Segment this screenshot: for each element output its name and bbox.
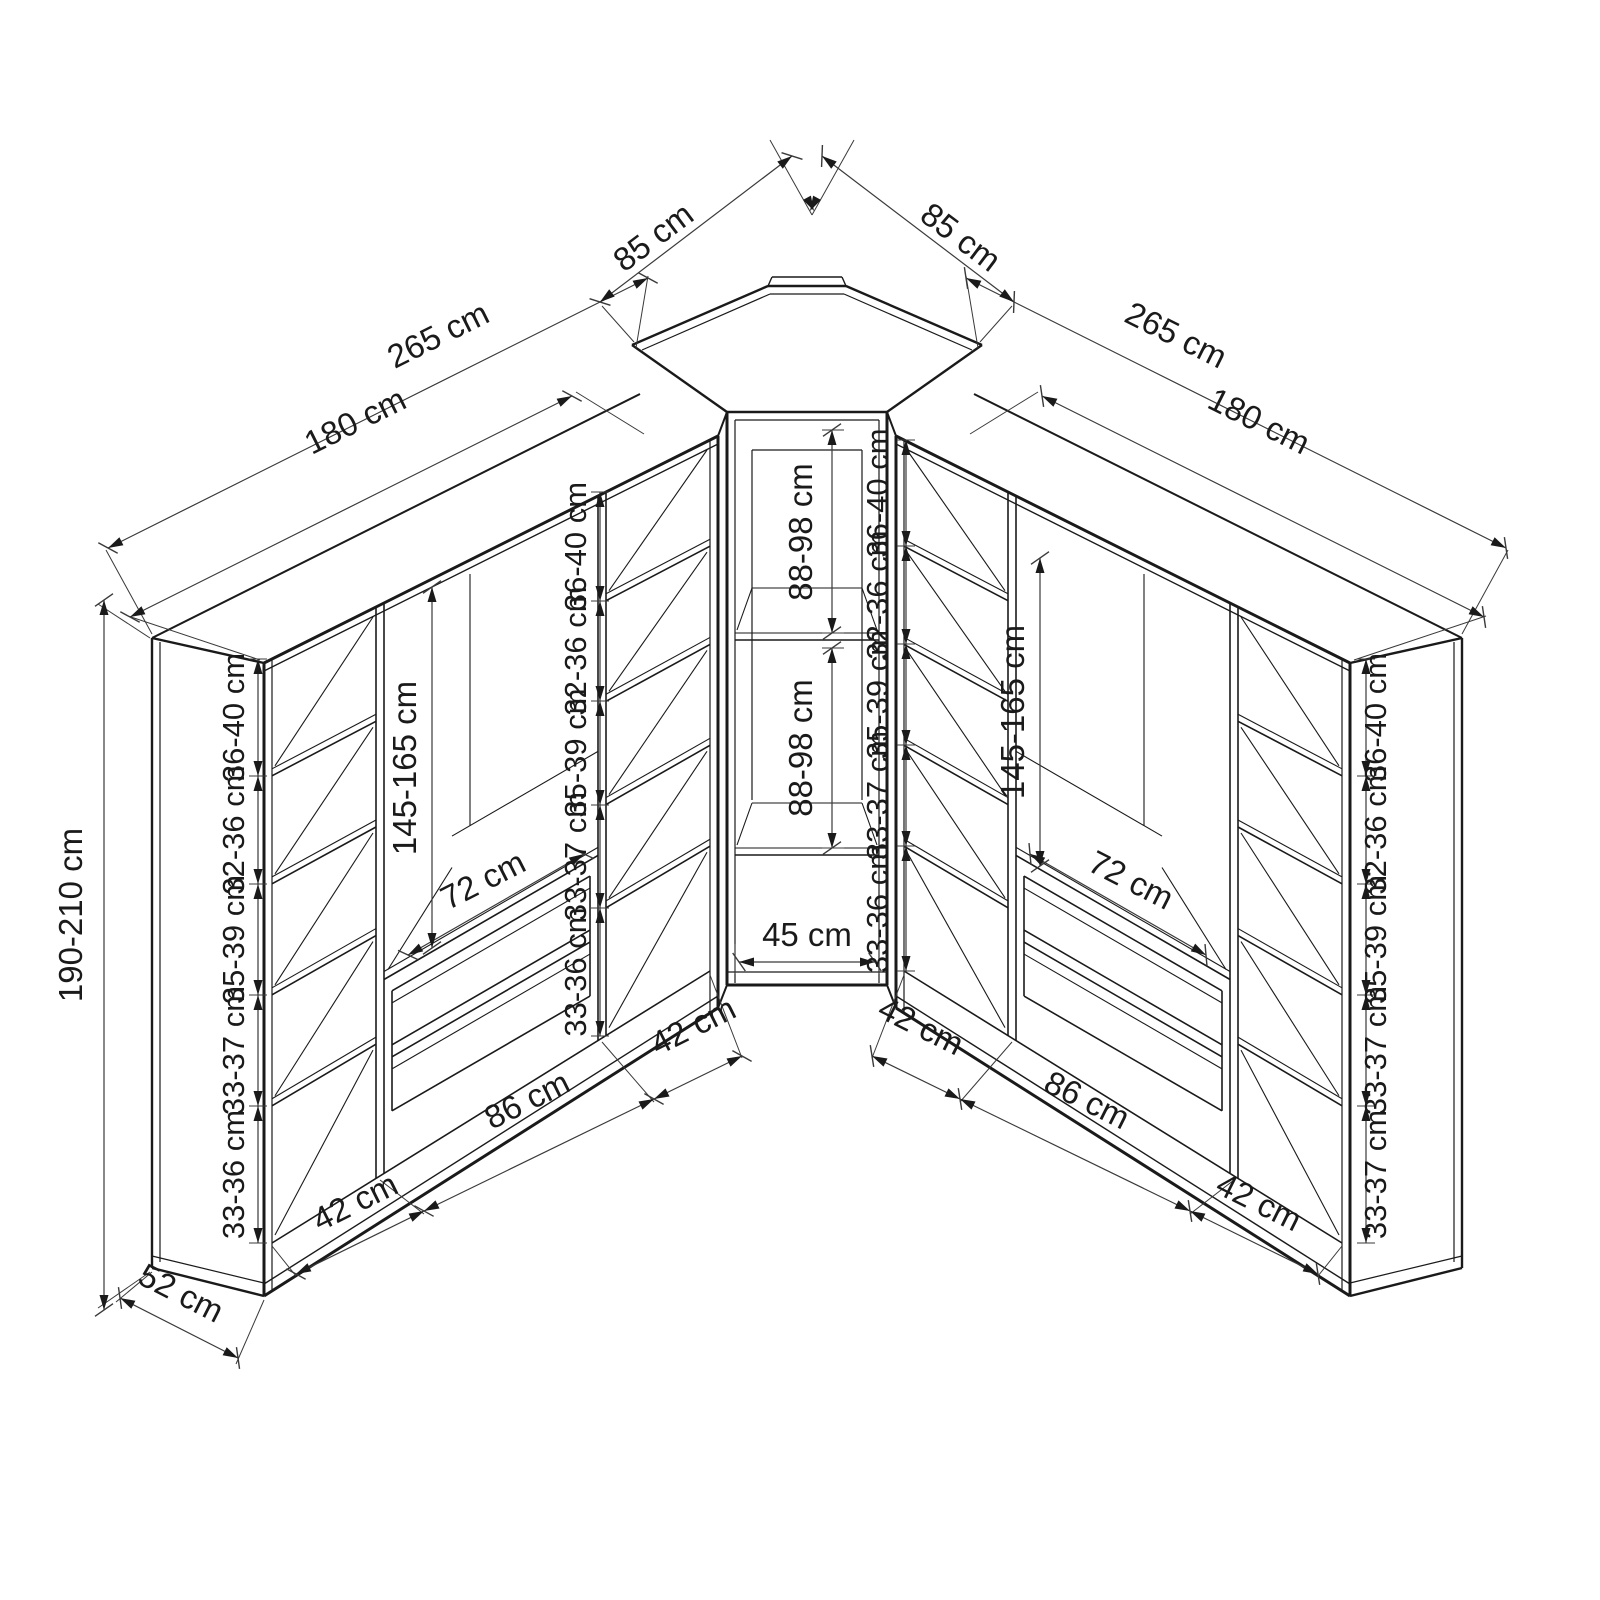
dim-label: 35-39 cm (1358, 875, 1393, 1004)
dim-label: 33-36 cm (558, 907, 593, 1036)
dim-label: 33-36 cm (860, 844, 895, 973)
dim-label: 33-37 cm (1358, 1110, 1393, 1239)
dim-label: 42 cm (644, 989, 741, 1062)
dim-label: 33-37 cm (860, 731, 895, 860)
dim-label: 36-40 cm (1358, 653, 1393, 782)
dim-label: 52 cm (133, 1256, 230, 1330)
dim-label: 42 cm (1211, 1165, 1308, 1238)
diagram-canvas: 85 cm85 cm265 cm180 cm265 cm180 cm190-21… (0, 0, 1600, 1600)
dim-label: 88-98 cm (782, 463, 819, 601)
dim-label: 190-210 cm (52, 828, 89, 1002)
dim-label: 35-39 cm (216, 875, 251, 1004)
dim-label: 72 cm (434, 843, 531, 917)
dim-label: 42 cm (306, 1165, 403, 1238)
dim-label: 45 cm (762, 916, 852, 953)
dim-label: 180 cm (298, 380, 411, 461)
dim-label: 33-37 cm (1358, 986, 1393, 1115)
dim-label: 145-165 cm (386, 681, 423, 855)
dim-label: 33-37 cm (216, 986, 251, 1115)
dim-label: 180 cm (1202, 380, 1315, 461)
dim-label: 36-40 cm (216, 653, 251, 782)
dim-label: 72 cm (1083, 843, 1180, 917)
dim-label: 42 cm (873, 989, 970, 1062)
dim-label: 33-37 cm (558, 792, 593, 921)
dim-label: 86 cm (1039, 1063, 1136, 1136)
dim-label: 86 cm (478, 1063, 575, 1136)
wardrobe-dimension-diagram: 85 cm85 cm265 cm180 cm265 cm180 cm190-21… (0, 0, 1600, 1600)
dim-label: 33-36 cm (216, 1110, 251, 1239)
dimension-labels: 85 cm85 cm265 cm180 cm265 cm180 cm190-21… (52, 195, 1393, 1330)
dim-label: 145-165 cm (994, 625, 1031, 799)
dim-label: 88-98 cm (782, 679, 819, 817)
